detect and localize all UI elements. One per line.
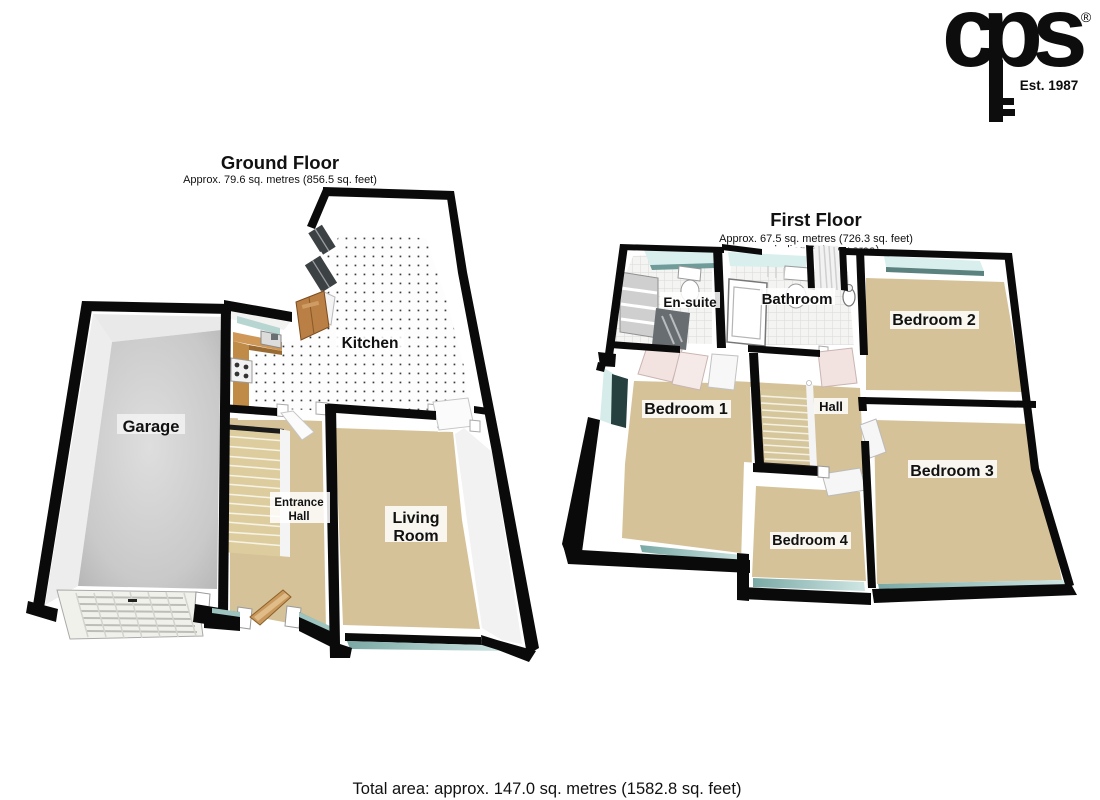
svg-text:Bedroom 1: Bedroom 1: [644, 401, 728, 418]
svg-text:®: ®: [1081, 9, 1092, 25]
svg-text:Est. 1987: Est. 1987: [1020, 78, 1079, 93]
svg-text:Hall: Hall: [288, 511, 309, 523]
svg-text:Garage: Garage: [123, 418, 180, 436]
svg-text:Kitchen: Kitchen: [342, 335, 399, 352]
svg-text:Bedroom 2: Bedroom 2: [892, 312, 976, 329]
svg-text:Room: Room: [393, 528, 438, 545]
svg-text:Living: Living: [392, 510, 439, 527]
svg-text:Ground Floor: Ground Floor: [221, 152, 339, 173]
svg-text:Approx. 79.6 sq. metres (856.5: Approx. 79.6 sq. metres (856.5 sq. feet): [183, 174, 377, 186]
svg-text:First Floor: First Floor: [770, 209, 861, 230]
svg-text:s: s: [1032, 0, 1088, 88]
svg-text:En-suite: En-suite: [663, 295, 717, 310]
svg-text:Bathroom: Bathroom: [762, 291, 833, 308]
svg-text:Hall: Hall: [819, 399, 843, 414]
svg-text:Bedroom 3: Bedroom 3: [910, 463, 994, 480]
svg-text:Total area: approx. 147.0 sq.: Total area: approx. 147.0 sq. metres (15…: [353, 780, 742, 798]
svg-text:Approx. 67.5 sq. metres (726.3: Approx. 67.5 sq. metres (726.3 sq. feet): [719, 233, 913, 245]
svg-text:Entrance: Entrance: [274, 497, 323, 509]
svg-text:Bedroom 4: Bedroom 4: [772, 533, 848, 549]
